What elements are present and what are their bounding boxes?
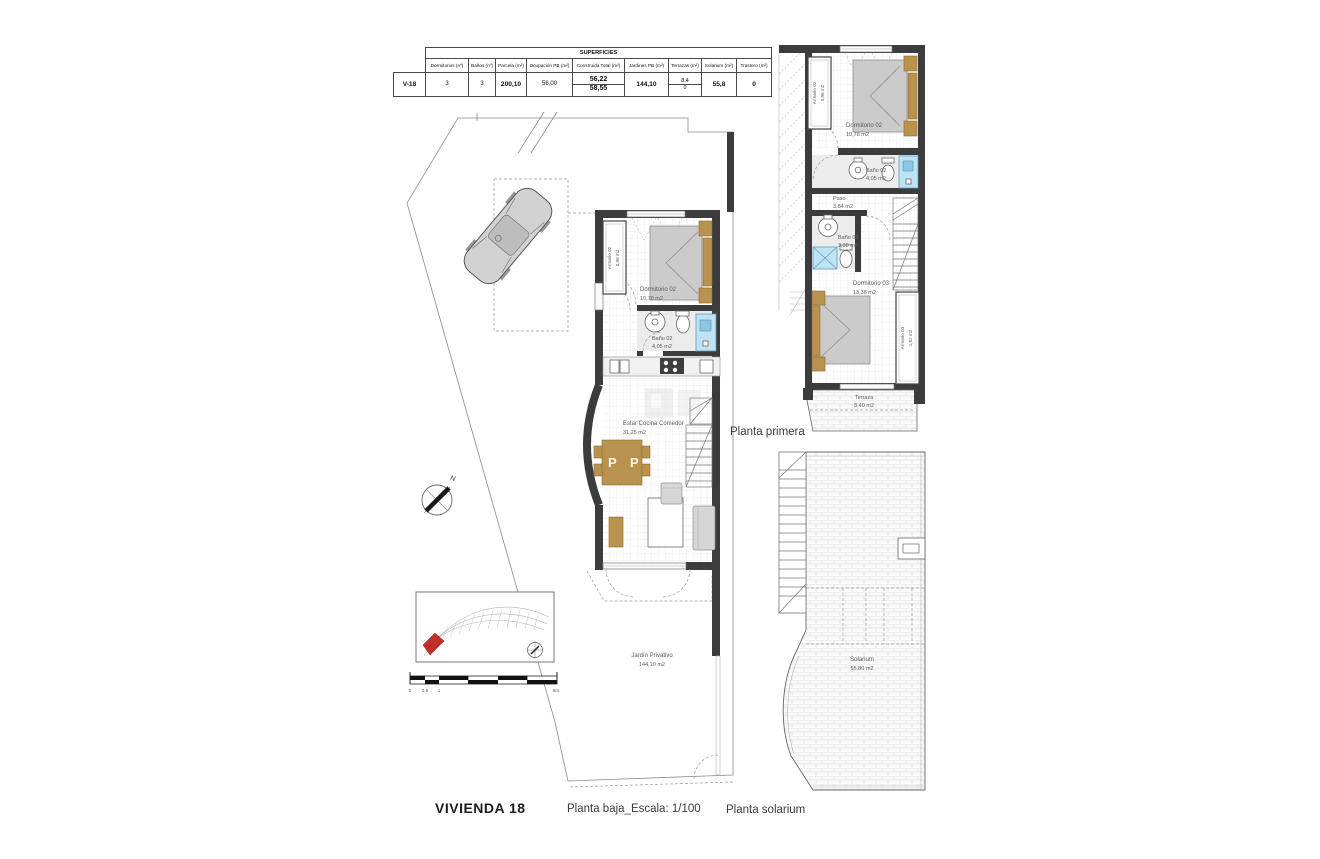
p1-armario02-area: 0,96 m2 (820, 84, 825, 101)
plan-sheet: Armario 02 0,96 m2 Dormitorio 02 10,78 m… (0, 0, 1320, 859)
armchair (661, 483, 682, 504)
surfaces-table: SUPERFICIES Dormitorios (nº) Baños (nº) … (393, 47, 772, 97)
solarium-area: 55,80 m2 (851, 666, 874, 672)
toilet-icon (677, 315, 690, 333)
stove-icon (660, 358, 684, 374)
scale-1: 1 (438, 688, 441, 693)
solarium-label: Solarium (850, 657, 874, 663)
coffee-table (648, 498, 683, 547)
planta-primera-plan: Armario 02 0,96 m2 Dormitorio 02 10,78 m… (779, 45, 925, 431)
neighbor-hatch (779, 45, 806, 315)
p1-armario02-label: Armario 02 (812, 81, 817, 104)
cell-solarium: 55,8 (702, 73, 737, 97)
scale-bar: 0 0.5 1 5m (409, 672, 560, 693)
col-parcela: Parcela (m²) (496, 59, 527, 73)
armario03-closet: Armario 03 1,62 m2 (896, 292, 919, 384)
p1-bano02-label: Baño 02 (866, 168, 887, 174)
col-terrazas: Terrazas (m²) (669, 59, 702, 73)
cell-terrazas: 8,4 0 (669, 73, 702, 97)
table-corner-spacer2 (394, 59, 426, 73)
dining-table: P P (594, 440, 650, 485)
door-terraza (840, 384, 894, 389)
armario02-area: 0,96 m2 (615, 249, 620, 266)
construida-total-p1: 58,55 (573, 85, 624, 93)
dormitorio02-area: 10,78 m2 (640, 296, 663, 302)
sofa (693, 506, 715, 550)
bed-dormitorio03 (812, 291, 870, 371)
col-banos: Baños (nº) (469, 59, 496, 73)
paso-area: 3,84 m2 (833, 204, 853, 210)
surfaces-table-title: SUPERFICIES (426, 48, 772, 59)
stairs-solarium (779, 452, 806, 613)
planta-baja-scale-caption: Planta baja_Escala: 1/100 (567, 803, 701, 815)
kitchen-counter (603, 357, 720, 376)
cell-ocupacion-pb: 56,00 (527, 73, 573, 97)
kitchen-sink-icon (610, 360, 619, 373)
col-jardines-pb: Jardines PB (m²) (625, 59, 669, 73)
planta-solarium-plan: Solarium 55,80 m2 (779, 452, 925, 790)
bano03-label: Baño 03 (838, 235, 859, 241)
scale-05: 0.5 (422, 688, 429, 693)
dormitorio03-area: 13,38 m2 (853, 290, 876, 296)
col-dormitorios: Dormitorios (nº) (426, 59, 469, 73)
site-plan-inset (416, 592, 554, 662)
col-construida-total: Construida Total (m²) (573, 59, 625, 73)
cell-parcela: 200,10 (496, 73, 527, 97)
paso-label: Paso (833, 196, 846, 202)
estar-area: 31,25 m2 (623, 430, 646, 436)
terraza-area: 8,40 m2 (854, 403, 874, 409)
north-compass-icon: N (422, 475, 457, 515)
estar-label: Estar Cocina Comedor (623, 421, 684, 427)
cell-jardines-pb: 144,10 (625, 73, 669, 97)
dormitorio02-label: Dormitorio 02 (640, 287, 677, 293)
armario02-closet: Armario 02 0,96 m2 (603, 221, 626, 294)
floorplan-drawing: Armario 02 0,96 m2 Dormitorio 02 10,78 m… (0, 0, 1320, 859)
sheet-title: VIVIENDA 18 (435, 800, 526, 816)
jardin-label: Jardín Privativo (631, 653, 673, 659)
construida-total-pb: 56,22 (573, 76, 624, 85)
scale-0: 0 (409, 688, 412, 693)
wall-dorm-bath (637, 305, 712, 311)
jardin-area: 144,10 m2 (639, 662, 665, 668)
terraza: Terraza 8,40 m2 (803, 388, 925, 431)
planter-box (898, 538, 925, 559)
bano03-area: 3,30 m2 (838, 243, 858, 249)
bano02-label: Baño 02 (652, 336, 673, 342)
armario02-label: Armario 02 (607, 246, 612, 269)
compass-n-label: N (450, 475, 457, 483)
bano02-area: 4,05 m2 (652, 344, 672, 350)
terraza-label: Terraza (855, 395, 874, 401)
garden-wall (712, 570, 720, 656)
terrazas-ps: 0 (669, 85, 701, 91)
armario03-area: 1,62 m2 (908, 329, 913, 346)
planta-baja-plan: Armario 02 0,96 m2 Dormitorio 02 10,78 m… (407, 112, 734, 787)
table-corner-spacer (394, 48, 426, 59)
p1-dormitorio02-area: 10,78 m2 (846, 132, 869, 138)
sideboard (609, 517, 623, 547)
p1-armario02-closet: Armario 02 0,96 m2 (808, 57, 831, 129)
col-ocupacion-pb: Ocupación PB (m²) (527, 59, 573, 73)
terrazas-p1: 8,4 (669, 78, 701, 85)
curved-bay-wall (587, 385, 599, 505)
toilet-icon (840, 251, 852, 268)
cell-dormitorios: 3 (426, 73, 469, 97)
scale-5m: 5m (553, 688, 560, 693)
table-watermark: P P (608, 455, 644, 470)
cell-construida-total: 56,22 58,55 (573, 73, 625, 97)
armario03-label: Armario 03 (900, 326, 905, 349)
p1-bano02-area: 4,05 m2 (866, 176, 886, 182)
cell-banos: 3 (469, 73, 496, 97)
planta-solarium-caption: Planta solarium (726, 804, 805, 816)
sidewalk-dashed-line (570, 782, 733, 787)
car-top-view (456, 181, 560, 292)
cell-row-label: V-18 (394, 73, 426, 97)
neighbor-wall (727, 132, 734, 212)
entrance-door-gap (595, 283, 603, 310)
garden-fence (716, 656, 720, 775)
cell-trastero: 0 (737, 73, 772, 97)
p1-dormitorio02-label: Dormitorio 02 (846, 123, 883, 129)
planta-primera-caption: Planta primera (730, 426, 805, 438)
col-solarium: Solarium (m²) (702, 59, 737, 73)
dormitorio03-label: Dormitorio 03 (853, 281, 890, 287)
faded-appliances (645, 388, 700, 418)
col-trastero: Trastero (m²) (737, 59, 772, 73)
